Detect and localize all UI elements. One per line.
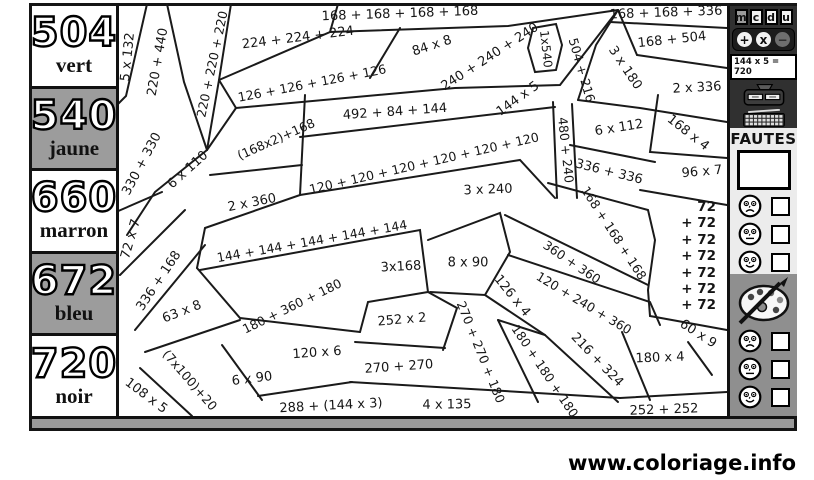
score-row-neutral bbox=[738, 357, 790, 381]
legend-item-noir: 720noir bbox=[32, 336, 116, 416]
face-neutral-icon bbox=[738, 222, 762, 246]
score-checkbox-neutral[interactable] bbox=[771, 360, 790, 379]
face-sad-icon bbox=[738, 329, 762, 353]
legend-item-vert: 504vert bbox=[32, 6, 116, 89]
bottom-band bbox=[32, 416, 794, 428]
worksheet-frame bbox=[29, 3, 797, 431]
score-row-happy bbox=[738, 250, 790, 274]
score-row-sad bbox=[738, 194, 790, 218]
legend-item-bleu: 672bleu bbox=[32, 254, 116, 337]
face-happy-icon bbox=[738, 385, 762, 409]
fautes-section: FAUTES bbox=[730, 128, 797, 274]
face-sad-icon bbox=[738, 194, 762, 218]
legend-color-name: noir bbox=[55, 384, 92, 409]
score-checkbox-sad[interactable] bbox=[771, 197, 790, 216]
face-neutral-icon bbox=[738, 357, 762, 381]
place-value-tile-c: c bbox=[750, 9, 763, 25]
score-row-sad bbox=[738, 329, 790, 353]
legend-color-name: bleu bbox=[55, 301, 94, 326]
score-checkbox-happy[interactable] bbox=[771, 253, 790, 272]
score-row-happy bbox=[738, 385, 790, 409]
legend-item-marron: 660marron bbox=[32, 171, 116, 254]
keyboard-icon bbox=[735, 109, 793, 128]
legend-value: 720 bbox=[31, 344, 118, 384]
operator-plus-icon: + bbox=[737, 32, 752, 47]
fautes-answer-box[interactable] bbox=[737, 150, 791, 190]
legend-value: 540 bbox=[31, 96, 118, 136]
legend-color-name: marron bbox=[40, 218, 108, 243]
score-checkbox-sad[interactable] bbox=[771, 332, 790, 351]
legend-value: 504 bbox=[31, 13, 118, 53]
legend-item-jaune: 540jaune bbox=[32, 89, 116, 172]
pencil-case-icon bbox=[735, 83, 793, 107]
operator-panel: +x− bbox=[732, 28, 795, 51]
operator-minus-icon: − bbox=[775, 32, 790, 47]
legend-value: 672 bbox=[31, 261, 118, 301]
legend-value: 660 bbox=[31, 178, 118, 218]
place-value-tiles: mcdu bbox=[735, 9, 793, 25]
operator-times-icon: x bbox=[756, 32, 771, 47]
place-value-tile-m: m bbox=[735, 9, 748, 25]
palette-icon bbox=[736, 277, 792, 325]
palette-section bbox=[730, 274, 797, 416]
worksheet-page: 504vert540jaune660marron672bleu720noir 7… bbox=[0, 0, 814, 480]
score-row-neutral bbox=[738, 222, 790, 246]
legend-color-name: jaune bbox=[49, 136, 99, 161]
place-value-tile-d: d bbox=[765, 9, 778, 25]
score-rows-gray bbox=[738, 325, 790, 409]
score-checkbox-happy[interactable] bbox=[771, 388, 790, 407]
legend-color-name: vert bbox=[56, 53, 92, 78]
color-legend: 504vert540jaune660marron672bleu720noir bbox=[32, 6, 119, 416]
sidebar-calc-panel: mcdu +x− 144 x 5 = 720 bbox=[730, 6, 797, 128]
sidebar: mcdu +x− 144 x 5 = 720 FAUTES bbox=[727, 6, 797, 416]
calc-display: 144 x 5 = 720 bbox=[730, 54, 797, 80]
score-rows-light bbox=[738, 190, 790, 274]
website-link[interactable]: www.coloriage.info bbox=[568, 451, 796, 475]
place-value-tile-u: u bbox=[780, 9, 793, 25]
face-happy-icon bbox=[738, 250, 762, 274]
score-checkbox-neutral[interactable] bbox=[771, 225, 790, 244]
fautes-label: FAUTES bbox=[730, 130, 796, 148]
